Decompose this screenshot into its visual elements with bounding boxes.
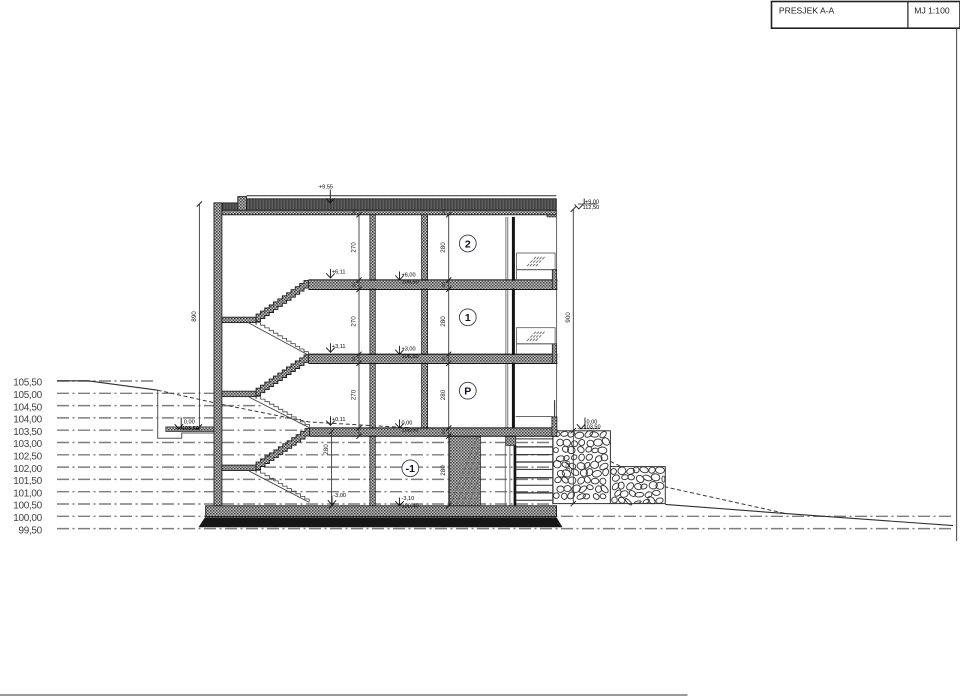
svg-text:270: 270: [351, 389, 358, 400]
svg-text:104,00: 104,00: [13, 415, 42, 426]
svg-text:30: 30: [441, 209, 446, 215]
svg-text:100,40: 100,40: [402, 503, 419, 509]
svg-text:-3,00: -3,00: [333, 493, 346, 499]
svg-text:280: 280: [440, 465, 447, 476]
svg-text:100,00: 100,00: [13, 513, 42, 524]
svg-text:102,00: 102,00: [13, 464, 42, 475]
svg-text:102,50: 102,50: [13, 452, 42, 463]
svg-text:112,50: 112,50: [583, 205, 600, 211]
svg-text:+0,11: +0,11: [332, 417, 346, 423]
svg-text:-3,10: -3,10: [402, 496, 415, 502]
svg-text:900: 900: [565, 312, 572, 323]
svg-text:103,50: 103,50: [182, 426, 199, 432]
svg-text:-1: -1: [406, 463, 415, 475]
svg-text:30: 30: [441, 429, 446, 435]
svg-text:+6,11: +6,11: [332, 270, 346, 276]
svg-text:101,00: 101,00: [13, 488, 42, 499]
svg-text:+6,00: +6,00: [402, 272, 416, 278]
svg-text:99,50: 99,50: [19, 525, 43, 536]
svg-text:30: 30: [352, 209, 357, 215]
svg-text:103,50: 103,50: [402, 428, 419, 434]
svg-text:103,50: 103,50: [13, 427, 42, 438]
svg-text:300: 300: [565, 460, 572, 471]
svg-text:30: 30: [441, 356, 446, 362]
svg-text:30: 30: [441, 282, 446, 288]
svg-text:105,50: 105,50: [13, 378, 42, 389]
svg-text:103,50: 103,50: [584, 425, 601, 431]
svg-text:30: 30: [352, 356, 357, 362]
svg-text:105,00: 105,00: [13, 390, 42, 401]
svg-text:270: 270: [351, 242, 358, 253]
svg-text:0,00: 0,00: [402, 420, 413, 426]
svg-text:30: 30: [352, 282, 357, 288]
svg-text:2: 2: [465, 238, 471, 250]
svg-text:104,50: 104,50: [13, 402, 42, 413]
svg-text:0,00: 0,00: [184, 419, 195, 425]
svg-text:890: 890: [191, 311, 198, 322]
svg-text:PRESJEK A-A: PRESJEK A-A: [779, 6, 835, 16]
svg-text:280: 280: [440, 316, 447, 327]
svg-text:+3,00: +3,00: [402, 347, 416, 353]
svg-text:+9,55: +9,55: [319, 184, 333, 190]
svg-text:101,50: 101,50: [13, 476, 42, 487]
svg-text:P: P: [464, 386, 471, 398]
svg-text:109,50: 109,50: [402, 280, 419, 286]
svg-text:1: 1: [465, 312, 471, 324]
svg-text:MJ 1:100: MJ 1:100: [914, 6, 950, 16]
svg-text:100,50: 100,50: [13, 501, 42, 512]
svg-text:103,00: 103,00: [13, 439, 42, 450]
svg-text:280: 280: [440, 242, 447, 253]
svg-text:+3,11: +3,11: [332, 344, 346, 350]
svg-text:280: 280: [440, 389, 447, 400]
svg-text:280: 280: [323, 444, 330, 455]
svg-text:270: 270: [351, 316, 358, 327]
svg-text:106,50: 106,50: [402, 354, 419, 360]
